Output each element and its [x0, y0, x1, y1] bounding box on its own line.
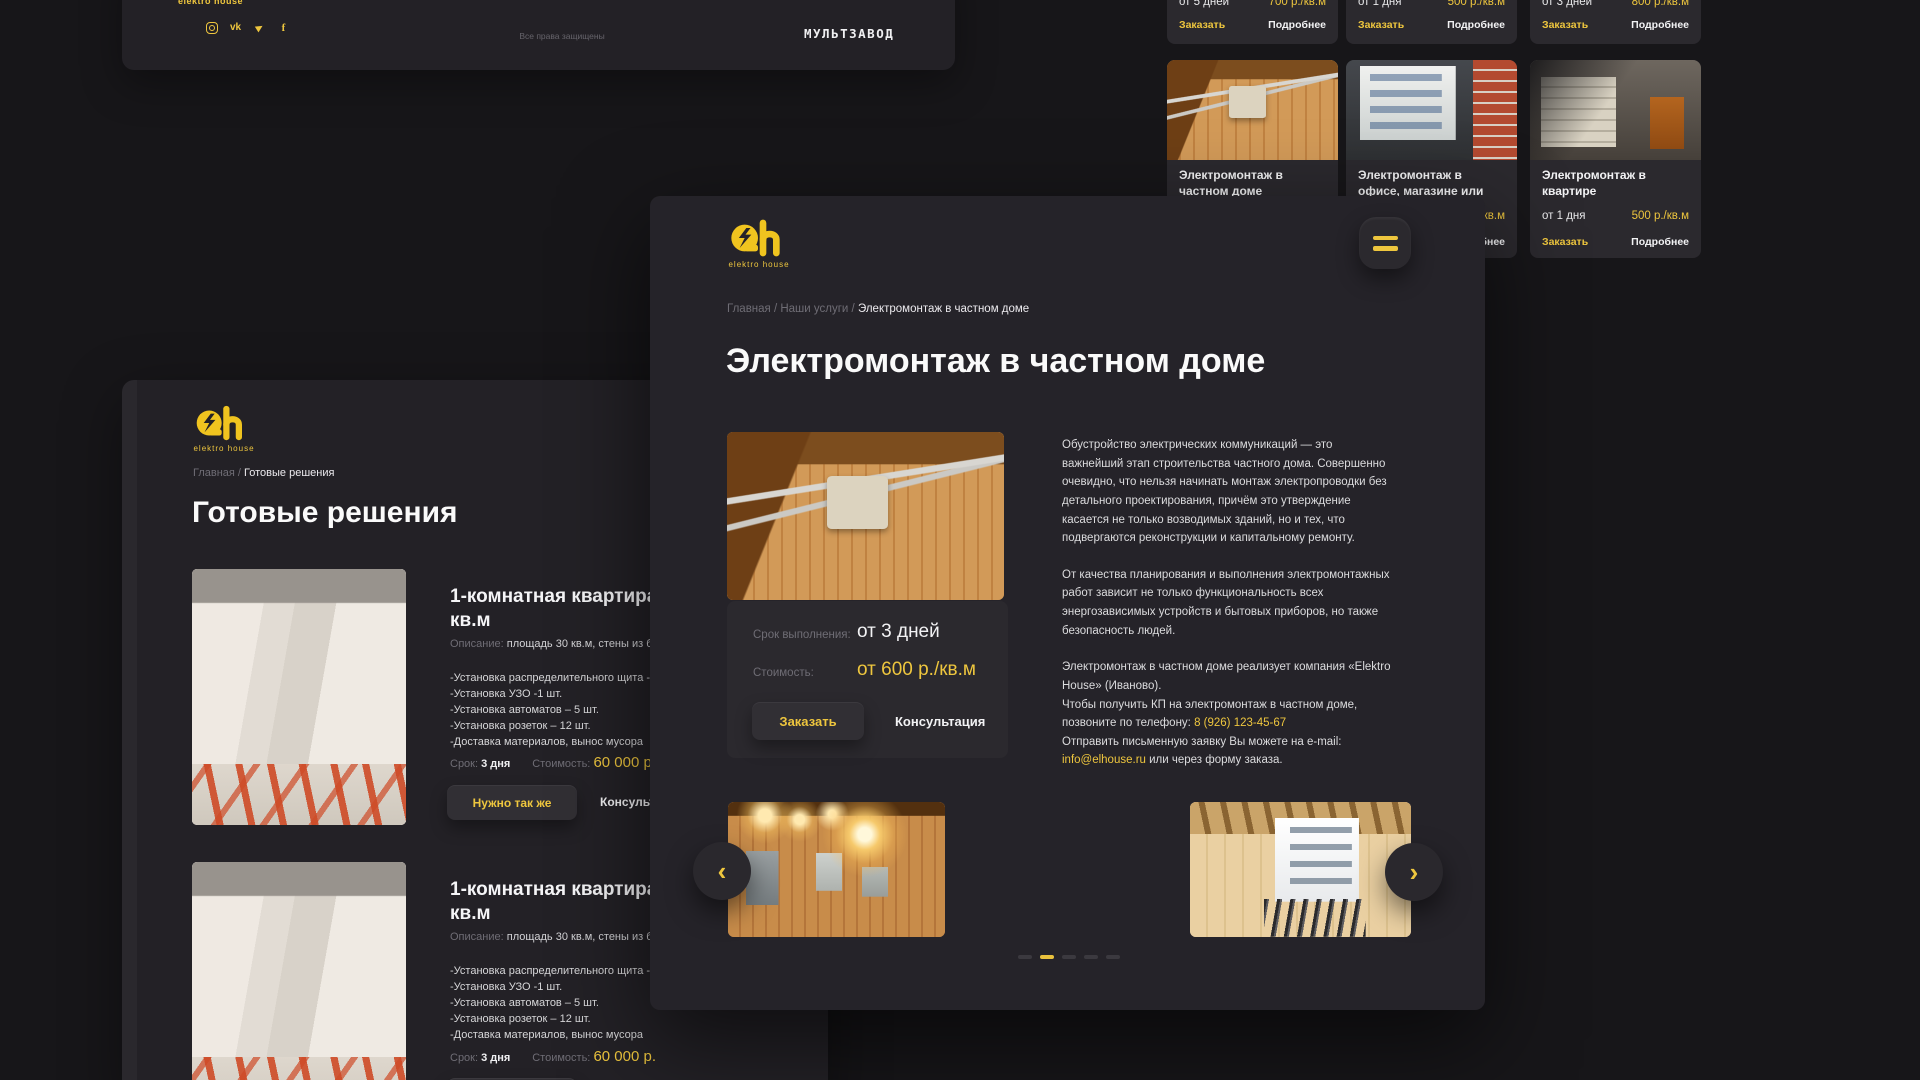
- service-price: 800 р./кв.м: [1632, 0, 1689, 8]
- price-value: от 600 р./кв.м: [857, 659, 976, 681]
- carousel-dot[interactable]: [1018, 955, 1032, 959]
- service-title: Электромонтаж в частном доме: [1179, 168, 1326, 200]
- service-detail-page: elektro house Главная / Наши услуги / Эл…: [650, 196, 1485, 1010]
- order-link[interactable]: Заказать: [1542, 236, 1588, 248]
- logo[interactable]: elektro house: [726, 218, 792, 269]
- consultation-button[interactable]: Консультация: [895, 714, 985, 729]
- logo-mark: [726, 218, 780, 258]
- more-link[interactable]: Подробнее: [1268, 19, 1326, 31]
- carousel-dots: [1018, 955, 1120, 959]
- need-same-button[interactable]: Нужно так же: [447, 785, 577, 820]
- page-edge: [122, 380, 137, 1080]
- breadcrumb-current: Готовые решения: [244, 467, 334, 479]
- service-term: от 1 дня: [1358, 0, 1401, 8]
- order-link[interactable]: Заказать: [1358, 19, 1404, 31]
- vk-icon[interactable]: vk: [228, 20, 243, 35]
- email-link[interactable]: info@elhouse.ru: [1062, 754, 1146, 766]
- paragraph: От качества планирования и выполнения эл…: [1062, 566, 1394, 641]
- breadcrumb: Главная / Наши услуги / Электромонтаж в …: [727, 303, 1029, 315]
- service-photo: [1167, 60, 1338, 160]
- term-label: Срок:: [450, 1052, 478, 1064]
- order-button[interactable]: Заказать: [752, 702, 864, 740]
- term-price-row: Срок: 3 дня Стоимость: 60 000 р.: [450, 1048, 656, 1065]
- carousel-dot-active[interactable]: [1040, 955, 1054, 959]
- carousel-dot[interactable]: [1106, 955, 1120, 959]
- copyright-text: Все права защищены: [462, 31, 662, 41]
- term-label: Срок:: [450, 758, 478, 770]
- price-value: 60 000 р.: [593, 754, 656, 771]
- service-term: от 3 дней: [1542, 0, 1592, 8]
- solution-photo: [192, 569, 406, 825]
- paragraph-text: или через форму заказа.: [1146, 754, 1283, 766]
- details-card: Срок выполнения: от 3 дней Стоимость: от…: [727, 601, 1008, 758]
- menu-button[interactable]: [1359, 217, 1411, 269]
- phone-link[interactable]: 8 (926) 123-45-67: [1194, 717, 1286, 729]
- paragraph: Обустройство электрических коммуникаций …: [1062, 436, 1394, 548]
- service-card[interactable]: от 1 дня 500 р./кв.м Заказать Подробнее: [1346, 0, 1517, 44]
- breadcrumb-current: Электромонтаж в частном доме: [858, 303, 1029, 315]
- hero-photo: [727, 432, 1004, 600]
- more-link[interactable]: Подробнее: [1631, 236, 1689, 248]
- carousel-prev-button[interactable]: ‹: [693, 842, 751, 900]
- logo-text: elektro house: [192, 444, 256, 453]
- carousel-dot[interactable]: [1084, 955, 1098, 959]
- term-label: Срок выполнения:: [753, 629, 851, 641]
- service-card[interactable]: Электромонтаж в квартире от 1 дня 500 р.…: [1530, 60, 1701, 258]
- more-link[interactable]: Подробнее: [1631, 19, 1689, 31]
- logo-mark: [192, 404, 242, 442]
- service-photo: [1346, 60, 1517, 160]
- carousel-next-button[interactable]: ›: [1385, 843, 1443, 901]
- more-link[interactable]: Подробнее: [1447, 19, 1505, 31]
- service-price: 500 р./кв.м: [1448, 0, 1505, 8]
- term-value: 3 дня: [481, 1052, 510, 1064]
- studio-logo[interactable]: МУЛЬТЗАВОД: [804, 26, 894, 41]
- feature-item: -Установка розеток – 12 шт.: [450, 1011, 730, 1027]
- breadcrumb-trail[interactable]: Главная /: [193, 467, 241, 479]
- page-title: Готовые решения: [192, 496, 458, 530]
- price-value: 60 000 р.: [593, 1048, 656, 1065]
- footer-bar: elektro house vk ▶ f Все права защищены …: [122, 0, 955, 70]
- paragraph: Электромонтаж в частном доме реализует к…: [1062, 658, 1394, 770]
- hamburger-icon: [1373, 246, 1398, 251]
- term-value: от 3 дней: [857, 621, 940, 643]
- service-term: от 1 дня: [1542, 210, 1585, 222]
- price-label: Стоимость:: [532, 758, 590, 770]
- breadcrumb: Главная / Готовые решения: [193, 467, 334, 479]
- gallery-photo[interactable]: [728, 802, 945, 937]
- term-price-row: Срок: 3 дня Стоимость: 60 000 р.: [450, 754, 656, 771]
- service-card[interactable]: от 3 дней 800 р./кв.м Заказать Подробнее: [1530, 0, 1701, 44]
- service-card[interactable]: от 5 дней 700 р./кв.м Заказать Подробнее: [1167, 0, 1338, 44]
- order-link[interactable]: Заказать: [1179, 19, 1225, 31]
- breadcrumb-trail[interactable]: Главная / Наши услуги /: [727, 303, 855, 315]
- paragraph-text: Электромонтаж в частном доме реализует к…: [1062, 661, 1390, 692]
- instagram-icon[interactable]: [204, 20, 219, 35]
- social-links: vk ▶ f: [204, 20, 291, 35]
- gallery-photo[interactable]: [1190, 802, 1411, 937]
- solution-photo: [192, 862, 406, 1080]
- chevron-right-icon: ›: [1410, 859, 1419, 885]
- order-link[interactable]: Заказать: [1542, 19, 1588, 31]
- paragraph-text: Отправить письменную заявку Вы можете на…: [1062, 736, 1341, 748]
- service-price: 500 р./кв.м: [1632, 210, 1689, 222]
- description-label: Описание:: [450, 638, 504, 650]
- logo[interactable]: elektro house: [192, 404, 256, 453]
- telegram-icon[interactable]: ▶: [249, 17, 270, 38]
- carousel-dot[interactable]: [1062, 955, 1076, 959]
- hamburger-icon: [1373, 236, 1398, 241]
- service-photo: [1530, 60, 1701, 160]
- page-title: Электромонтаж в частном доме: [726, 342, 1265, 381]
- facebook-icon[interactable]: f: [276, 20, 291, 35]
- gallery-photo[interactable]: [965, 802, 1173, 937]
- service-term: от 5 дней: [1179, 0, 1229, 8]
- price-label: Стоимость:: [753, 667, 814, 679]
- footer-logo-text: elektro house: [178, 0, 243, 6]
- service-title: Электромонтаж в квартире: [1542, 168, 1689, 200]
- service-price: 700 р./кв.м: [1269, 0, 1326, 8]
- logo-text: elektro house: [726, 260, 792, 269]
- feature-item: -Доставка материалов, вынос мусора: [450, 1027, 730, 1043]
- term-value: 3 дня: [481, 758, 510, 770]
- description-label: Описание:: [450, 931, 504, 943]
- chevron-left-icon: ‹: [718, 858, 727, 884]
- price-label: Стоимость:: [532, 1052, 590, 1064]
- article-text: Обустройство электрических коммуникаций …: [1062, 436, 1394, 788]
